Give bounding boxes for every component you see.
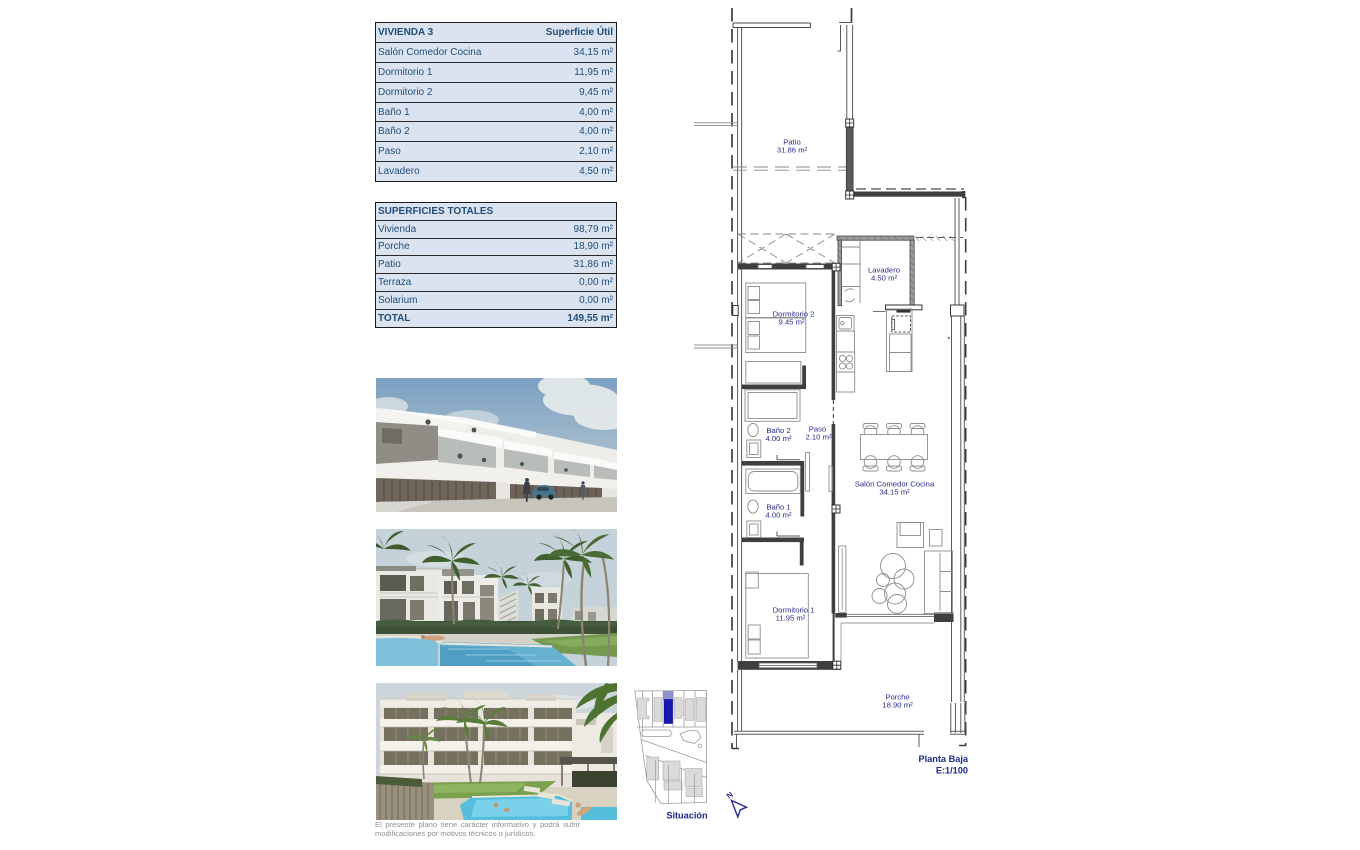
svg-text:E:1/100: E:1/100 xyxy=(936,766,968,776)
svg-text:N: N xyxy=(725,790,735,801)
svg-text:Planta Baja: Planta Baja xyxy=(918,754,968,764)
svg-text:4.50 m²: 4.50 m² xyxy=(871,274,898,283)
svg-text:9.45 m²: 9.45 m² xyxy=(778,318,805,327)
svg-text:Situación: Situación xyxy=(666,811,708,821)
svg-text:11.95 m²: 11.95 m² xyxy=(776,614,806,623)
svg-text:4.00 m²: 4.00 m² xyxy=(765,511,792,520)
svg-text:2.10 m²: 2.10 m² xyxy=(805,433,832,442)
svg-text:4.00 m²: 4.00 m² xyxy=(765,434,792,443)
svg-text:31.86 m²: 31.86 m² xyxy=(777,146,808,155)
svg-text:18.90 m²: 18.90 m² xyxy=(882,701,913,710)
svg-text:34.15 m²: 34.15 m² xyxy=(879,488,910,497)
